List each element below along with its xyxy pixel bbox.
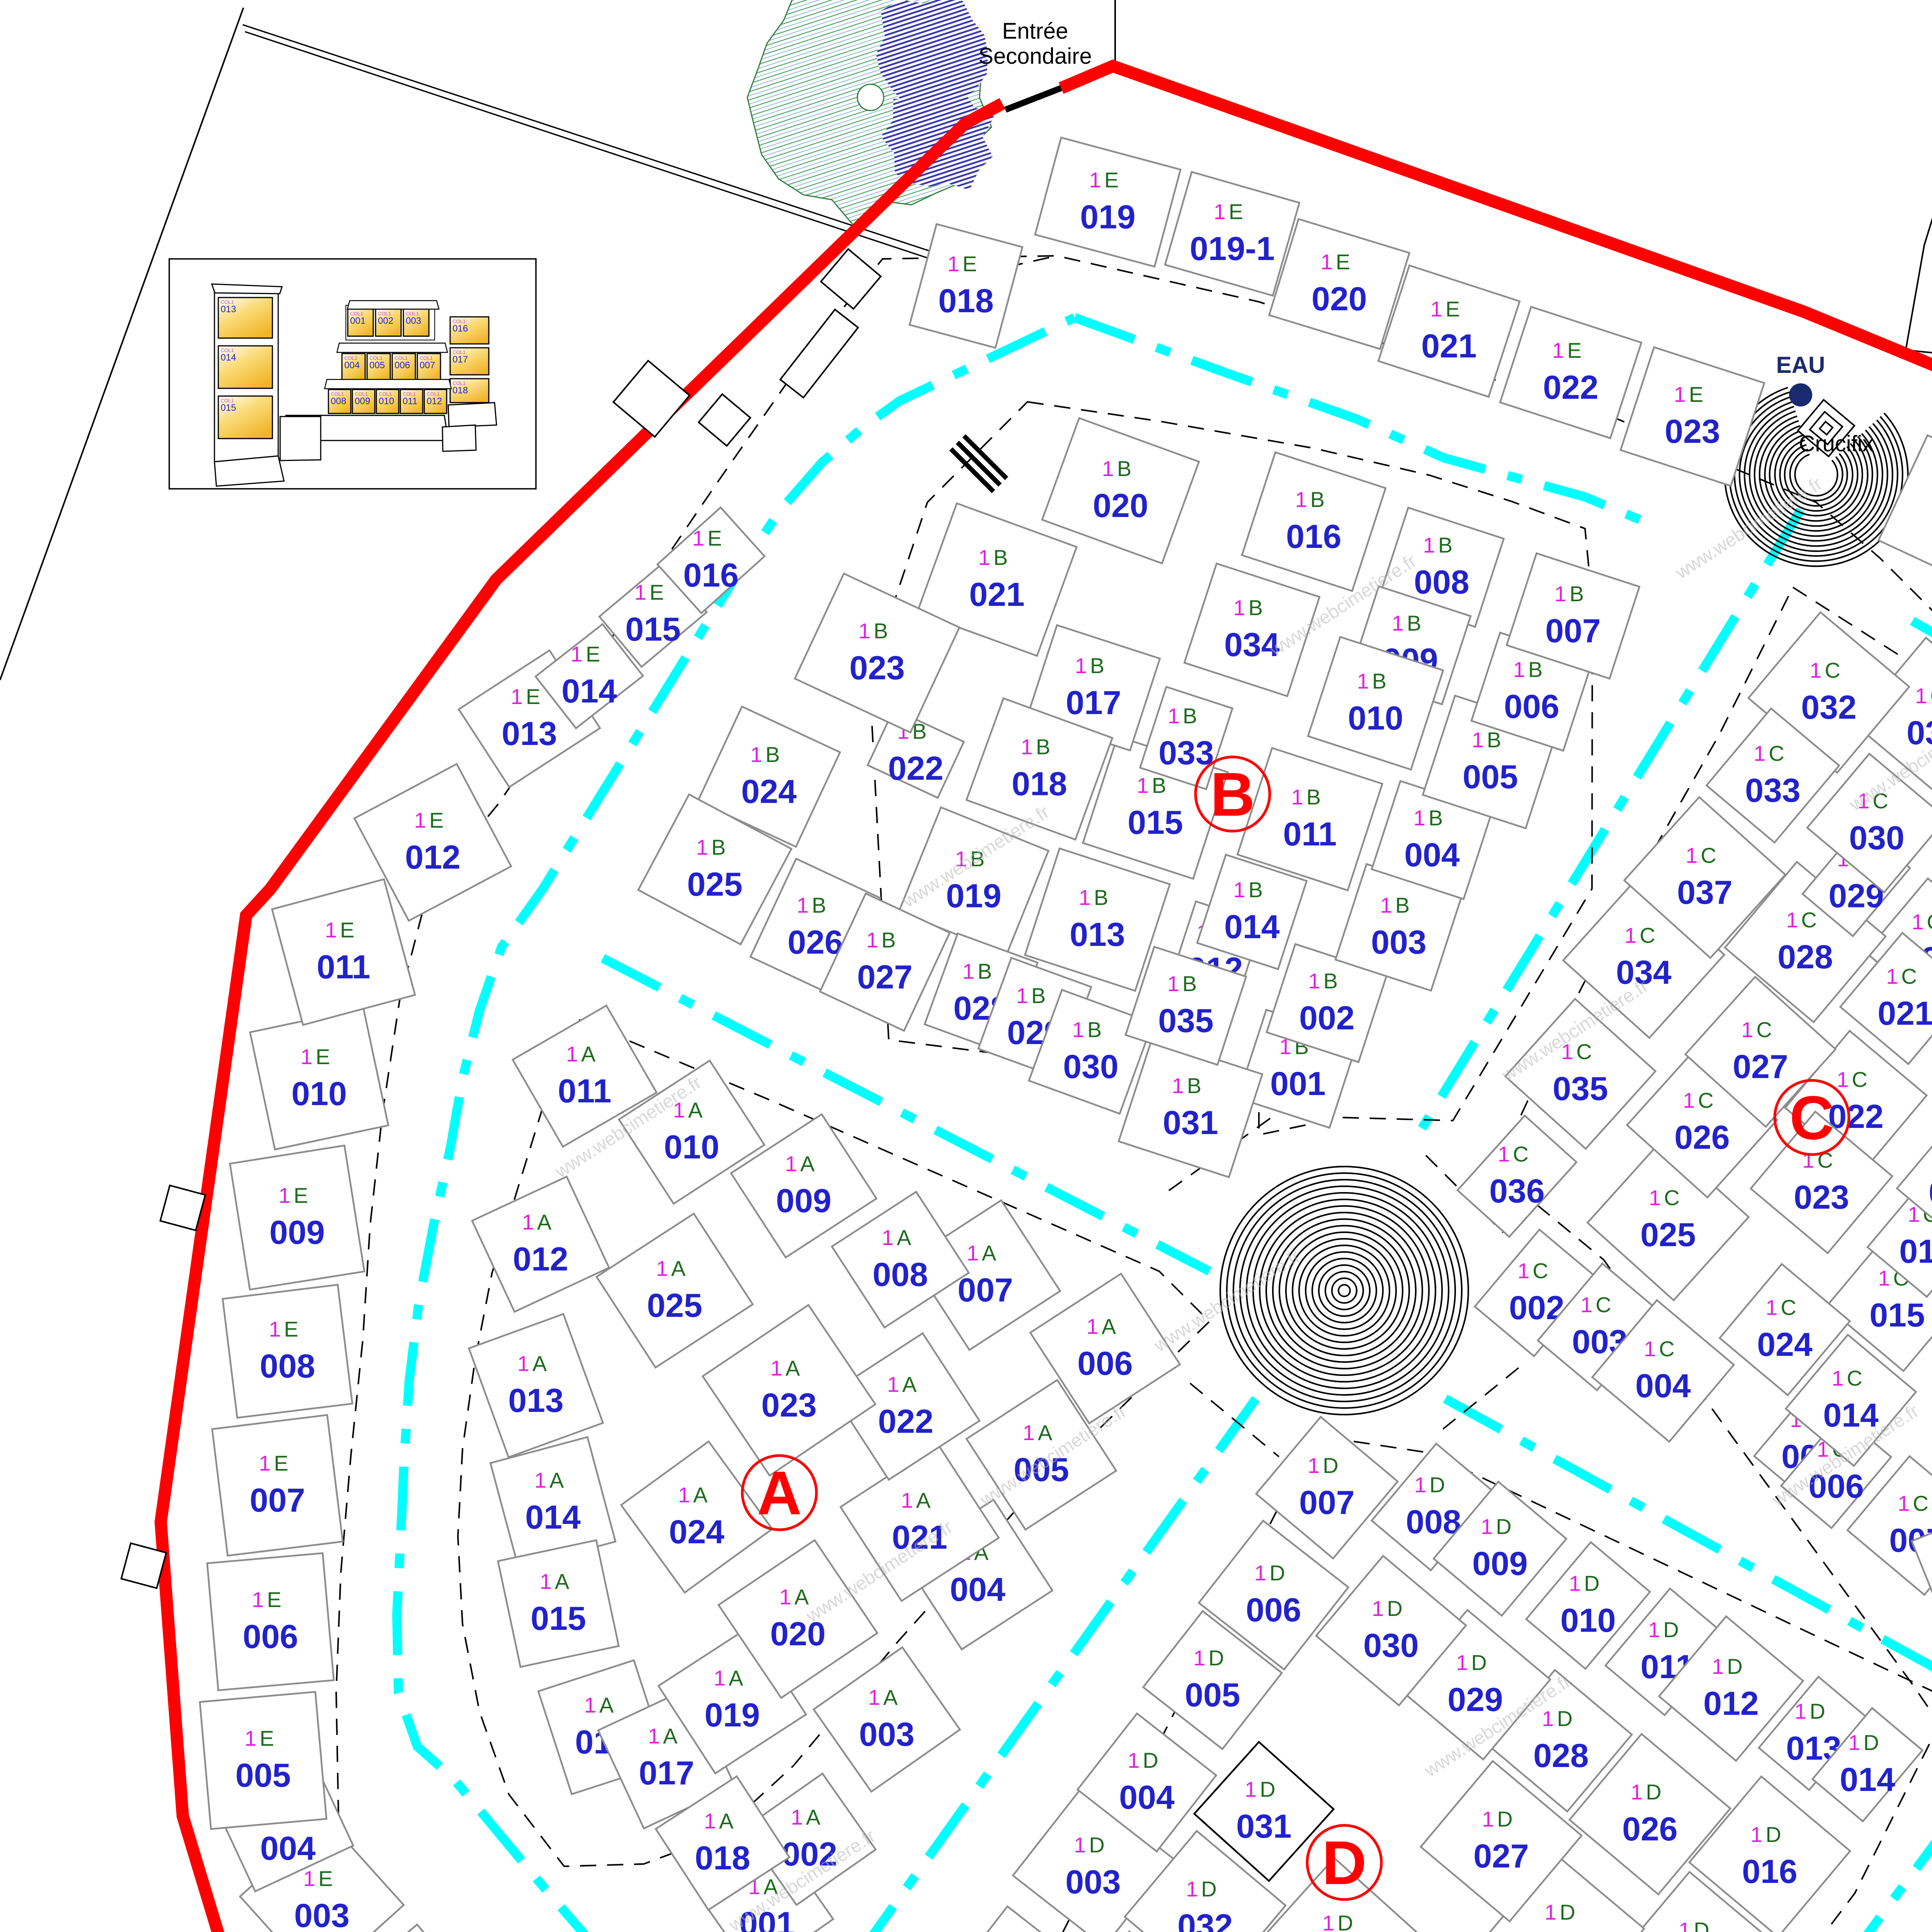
- svg-text:020: 020: [1093, 487, 1148, 524]
- svg-text:1D: 1D: [1569, 1571, 1600, 1595]
- svg-text:1D: 1D: [1456, 1650, 1487, 1675]
- svg-text:030: 030: [1063, 1048, 1119, 1085]
- svg-text:1B: 1B: [1423, 533, 1453, 557]
- svg-text:1B: 1B: [1016, 983, 1046, 1008]
- svg-text:1C: 1C: [1644, 1337, 1675, 1361]
- svg-text:1D: 1D: [1372, 1596, 1403, 1621]
- svg-text:1B: 1B: [1295, 487, 1325, 512]
- svg-text:1B: 1B: [1291, 785, 1321, 809]
- svg-text:011: 011: [317, 949, 371, 986]
- svg-text:1B: 1B: [1233, 878, 1263, 902]
- svg-text:023: 023: [1794, 1179, 1849, 1216]
- svg-text:016: 016: [452, 323, 468, 334]
- svg-text:030: 030: [1363, 1627, 1419, 1664]
- svg-text:006: 006: [395, 360, 410, 371]
- svg-text:004: 004: [1404, 837, 1460, 874]
- svg-text:1C: 1C: [1580, 1293, 1611, 1317]
- svg-text:019: 019: [946, 878, 1002, 915]
- svg-text:003: 003: [1065, 1864, 1121, 1901]
- svg-text:002: 002: [1299, 1000, 1355, 1037]
- svg-text:025: 025: [647, 1287, 702, 1324]
- svg-text:005: 005: [1185, 1677, 1240, 1714]
- svg-text:027: 027: [857, 959, 913, 996]
- svg-text:010: 010: [291, 1075, 347, 1112]
- svg-text:1A: 1A: [1023, 1420, 1053, 1445]
- svg-text:1B: 1B: [1021, 735, 1051, 759]
- svg-text:1C: 1C: [1649, 1185, 1680, 1210]
- svg-text:1D: 1D: [1794, 1699, 1825, 1723]
- svg-text:006: 006: [1246, 1592, 1301, 1629]
- svg-text:017: 017: [1066, 684, 1121, 721]
- svg-text:1B: 1B: [1172, 1073, 1202, 1098]
- svg-text:027: 027: [1473, 1838, 1529, 1875]
- svg-text:C: C: [1789, 1083, 1834, 1152]
- svg-text:1E: 1E: [511, 684, 541, 709]
- svg-text:1E: 1E: [259, 1451, 289, 1475]
- svg-text:025: 025: [1640, 1216, 1696, 1253]
- svg-text:B: B: [1210, 760, 1255, 829]
- svg-text:1E: 1E: [269, 1317, 299, 1341]
- svg-text:1D: 1D: [1414, 1473, 1445, 1497]
- svg-text:007: 007: [1545, 612, 1601, 650]
- svg-text:018: 018: [938, 282, 994, 320]
- svg-text:010: 010: [1348, 700, 1403, 737]
- svg-text:1C: 1C: [1741, 1017, 1772, 1042]
- svg-text:003: 003: [406, 316, 421, 326]
- svg-text:1E: 1E: [252, 1587, 282, 1612]
- svg-text:012: 012: [427, 396, 442, 406]
- svg-text:1A: 1A: [868, 1685, 898, 1709]
- svg-text:010: 010: [379, 396, 394, 406]
- svg-text:026: 026: [1622, 1811, 1678, 1848]
- svg-text:1E: 1E: [571, 642, 600, 666]
- svg-text:013: 013: [502, 715, 557, 752]
- svg-text:004: 004: [260, 1830, 316, 1867]
- svg-text:Secondaire: Secondaire: [978, 44, 1092, 69]
- svg-text:1E: 1E: [1674, 382, 1704, 406]
- svg-text:1A: 1A: [566, 1042, 596, 1066]
- svg-text:1C: 1C: [1683, 1088, 1714, 1112]
- svg-text:1C: 1C: [1810, 658, 1840, 682]
- svg-text:1D: 1D: [1648, 1617, 1679, 1642]
- svg-text:022: 022: [878, 1403, 934, 1440]
- svg-text:1C: 1C: [1517, 1259, 1548, 1283]
- svg-text:1B: 1B: [1513, 657, 1543, 682]
- svg-text:016: 016: [1742, 1853, 1798, 1890]
- svg-text:1A: 1A: [785, 1151, 815, 1176]
- svg-text:019: 019: [1080, 199, 1136, 236]
- svg-text:014: 014: [1840, 1761, 1895, 1798]
- svg-text:032: 032: [1801, 689, 1857, 726]
- svg-text:024: 024: [669, 1514, 724, 1551]
- svg-text:006: 006: [1077, 1345, 1133, 1382]
- svg-text:011: 011: [403, 396, 417, 406]
- svg-text:001: 001: [350, 316, 366, 326]
- svg-text:1B: 1B: [1079, 885, 1109, 910]
- svg-text:1D: 1D: [1128, 1748, 1158, 1772]
- svg-text:035: 035: [1553, 1070, 1608, 1107]
- svg-text:1D: 1D: [1186, 1877, 1217, 1901]
- svg-text:1B: 1B: [859, 619, 888, 643]
- svg-text:009: 009: [355, 396, 370, 406]
- svg-text:1A: 1A: [584, 1693, 614, 1717]
- svg-text:028: 028: [1533, 1737, 1589, 1774]
- svg-text:023: 023: [761, 1387, 817, 1424]
- svg-text:1C: 1C: [1837, 1067, 1867, 1092]
- svg-text:006: 006: [1504, 688, 1560, 725]
- svg-text:015: 015: [221, 403, 236, 413]
- svg-text:009: 009: [1472, 1545, 1528, 1582]
- svg-text:1E: 1E: [414, 808, 444, 832]
- svg-text:004: 004: [344, 360, 360, 371]
- svg-text:D: D: [1322, 1828, 1367, 1897]
- svg-text:EAU: EAU: [1776, 352, 1825, 378]
- svg-text:009: 009: [269, 1214, 325, 1251]
- svg-text:019: 019: [704, 1697, 760, 1734]
- svg-text:021: 021: [969, 576, 1025, 613]
- svg-text:023: 023: [1665, 413, 1720, 450]
- svg-text:1D: 1D: [1542, 1706, 1573, 1731]
- svg-text:028: 028: [1777, 939, 1833, 976]
- svg-text:1B: 1B: [978, 545, 1008, 570]
- svg-text:1E: 1E: [279, 1183, 308, 1207]
- svg-text:004: 004: [1119, 1779, 1175, 1816]
- svg-text:1C: 1C: [1786, 908, 1817, 932]
- svg-text:007: 007: [250, 1482, 305, 1519]
- svg-text:016: 016: [1899, 1233, 1932, 1270]
- svg-text:1A: 1A: [791, 1805, 821, 1829]
- svg-text:003: 003: [1371, 924, 1427, 961]
- svg-text:013: 013: [1070, 916, 1125, 953]
- svg-text:017: 017: [1929, 1174, 1932, 1211]
- svg-text:Entrée: Entrée: [1002, 19, 1068, 44]
- svg-text:031: 031: [1236, 1808, 1292, 1845]
- svg-text:037: 037: [1677, 874, 1733, 911]
- svg-text:1B: 1B: [1072, 1017, 1102, 1042]
- svg-text:008: 008: [1414, 564, 1469, 601]
- svg-text:015: 015: [531, 1600, 586, 1637]
- svg-text:1B: 1B: [1102, 456, 1132, 481]
- svg-text:003: 003: [294, 1897, 350, 1932]
- svg-text:023: 023: [849, 650, 905, 687]
- svg-text:1E: 1E: [634, 580, 664, 604]
- svg-text:1B: 1B: [866, 928, 896, 952]
- svg-text:027: 027: [1733, 1048, 1788, 1085]
- svg-text:1B: 1B: [1472, 728, 1502, 752]
- svg-text:018: 018: [452, 385, 468, 396]
- svg-text:1B: 1B: [1308, 969, 1338, 993]
- svg-text:1A: 1A: [704, 1809, 734, 1833]
- svg-text:1D: 1D: [1631, 1780, 1662, 1804]
- svg-text:1B: 1B: [1413, 806, 1443, 830]
- svg-text:1D: 1D: [1074, 1833, 1105, 1857]
- svg-text:005: 005: [235, 1757, 291, 1794]
- svg-text:1D: 1D: [1750, 1822, 1781, 1847]
- svg-text:012: 012: [1703, 1685, 1759, 1722]
- svg-text:1A: 1A: [648, 1724, 678, 1748]
- svg-text:1D: 1D: [1254, 1561, 1285, 1585]
- svg-text:1B: 1B: [1168, 704, 1197, 728]
- svg-text:008: 008: [260, 1348, 315, 1385]
- svg-text:033: 033: [1745, 772, 1801, 809]
- svg-text:1E: 1E: [1321, 250, 1350, 274]
- svg-text:1A: 1A: [901, 1488, 931, 1512]
- svg-text:1E: 1E: [325, 918, 355, 942]
- svg-text:015: 015: [625, 611, 681, 648]
- svg-text:008: 008: [331, 396, 346, 406]
- svg-text:012: 012: [405, 839, 461, 876]
- svg-text:031: 031: [1163, 1104, 1218, 1141]
- svg-text:014: 014: [1224, 908, 1280, 946]
- svg-text:016: 016: [683, 557, 739, 594]
- svg-text:015: 015: [1128, 804, 1183, 841]
- svg-text:021: 021: [1421, 328, 1477, 365]
- svg-text:1B: 1B: [750, 742, 780, 767]
- svg-text:1B: 1B: [696, 835, 726, 859]
- svg-text:011: 011: [558, 1073, 612, 1110]
- svg-text:1A: 1A: [517, 1351, 547, 1376]
- svg-text:1A: 1A: [522, 1210, 552, 1234]
- svg-text:1A: 1A: [678, 1483, 708, 1507]
- svg-text:030: 030: [1849, 820, 1905, 857]
- svg-text:026: 026: [787, 924, 843, 961]
- svg-text:1C: 1C: [1685, 843, 1716, 867]
- svg-text:1B: 1B: [797, 893, 827, 917]
- svg-text:005: 005: [1463, 759, 1518, 796]
- svg-text:036: 036: [1489, 1173, 1545, 1210]
- svg-text:Crucifix: Crucifix: [1799, 431, 1873, 456]
- svg-text:1D: 1D: [1712, 1654, 1743, 1679]
- svg-text:1E: 1E: [1430, 297, 1460, 321]
- svg-text:1A: 1A: [714, 1666, 743, 1690]
- svg-text:024: 024: [1757, 1326, 1813, 1363]
- svg-text:1D: 1D: [1308, 1453, 1338, 1478]
- svg-text:1A: 1A: [540, 1569, 570, 1594]
- svg-text:022: 022: [1543, 369, 1599, 406]
- svg-text:1D: 1D: [1481, 1514, 1512, 1539]
- svg-text:1E: 1E: [1214, 199, 1243, 224]
- svg-text:005: 005: [369, 360, 385, 371]
- svg-text:010: 010: [664, 1129, 719, 1166]
- svg-text:1B: 1B: [1392, 611, 1422, 635]
- svg-text:014: 014: [525, 1499, 581, 1536]
- svg-text:1B: 1B: [963, 959, 992, 983]
- svg-text:1C: 1C: [1832, 1366, 1862, 1390]
- svg-text:1B: 1B: [1357, 669, 1387, 693]
- svg-text:1D: 1D: [1245, 1777, 1276, 1801]
- svg-text:1E: 1E: [947, 252, 977, 276]
- svg-text:013: 013: [221, 304, 236, 315]
- svg-text:017: 017: [639, 1755, 694, 1792]
- svg-text:1B: 1B: [1167, 971, 1197, 996]
- svg-text:1A: 1A: [887, 1372, 917, 1396]
- svg-text:1A: 1A: [534, 1468, 564, 1492]
- svg-text:1A: 1A: [779, 1585, 809, 1609]
- svg-text:1D: 1D: [1848, 1730, 1879, 1755]
- svg-text:007: 007: [1299, 1484, 1355, 1521]
- svg-text:009: 009: [776, 1182, 832, 1219]
- svg-text:033: 033: [1158, 735, 1214, 772]
- svg-text:006: 006: [243, 1618, 298, 1655]
- svg-text:007: 007: [957, 1272, 1013, 1309]
- svg-text:1B: 1B: [1075, 653, 1105, 678]
- svg-text:016: 016: [1286, 518, 1342, 555]
- svg-text:018: 018: [1012, 765, 1067, 803]
- svg-text:1B: 1B: [1554, 582, 1584, 606]
- svg-text:011: 011: [1283, 816, 1337, 853]
- svg-text:1C: 1C: [1898, 1491, 1929, 1515]
- svg-text:1A: 1A: [1087, 1314, 1116, 1338]
- svg-text:1C: 1C: [1624, 923, 1655, 947]
- svg-text:1C: 1C: [1753, 741, 1784, 765]
- svg-text:1D: 1D: [1322, 1911, 1353, 1932]
- svg-text:1B: 1B: [1380, 893, 1410, 917]
- svg-text:002: 002: [378, 316, 393, 326]
- svg-text:1E: 1E: [303, 1866, 333, 1891]
- svg-text:035: 035: [1158, 1002, 1214, 1039]
- svg-text:014: 014: [561, 673, 617, 710]
- svg-text:1A: 1A: [882, 1225, 912, 1250]
- svg-text:1C: 1C: [1765, 1295, 1796, 1320]
- svg-text:013: 013: [508, 1382, 564, 1419]
- svg-text:017: 017: [452, 354, 468, 365]
- svg-text:025: 025: [687, 866, 743, 903]
- svg-text:032: 032: [1177, 1908, 1233, 1932]
- svg-text:015: 015: [1869, 1297, 1925, 1334]
- svg-text:020: 020: [1311, 281, 1367, 318]
- svg-text:024: 024: [741, 773, 797, 810]
- svg-text:1D: 1D: [1193, 1646, 1224, 1670]
- svg-text:1D: 1D: [1482, 1807, 1513, 1831]
- svg-text:026: 026: [1674, 1119, 1730, 1156]
- svg-text:019-1: 019-1: [1190, 230, 1275, 267]
- svg-text:007: 007: [420, 360, 435, 371]
- svg-text:021: 021: [1878, 995, 1932, 1032]
- svg-text:1D: 1D: [1679, 1918, 1709, 1932]
- svg-text:008: 008: [872, 1256, 928, 1293]
- svg-text:004: 004: [1635, 1367, 1691, 1405]
- svg-text:1C: 1C: [1886, 964, 1917, 988]
- svg-text:1B: 1B: [1233, 595, 1263, 620]
- svg-text:1A: 1A: [656, 1256, 686, 1281]
- svg-text:1A: 1A: [967, 1241, 997, 1265]
- svg-text:014: 014: [221, 352, 236, 363]
- svg-text:018: 018: [695, 1840, 750, 1877]
- svg-text:029: 029: [1447, 1681, 1503, 1718]
- svg-text:022: 022: [888, 750, 944, 787]
- svg-text:1E: 1E: [1089, 168, 1119, 192]
- svg-text:1C: 1C: [1912, 910, 1932, 934]
- svg-text:1D: 1D: [1544, 1900, 1575, 1924]
- svg-text:1E: 1E: [245, 1726, 274, 1750]
- svg-text:1B: 1B: [1137, 773, 1167, 798]
- svg-text:003: 003: [859, 1716, 915, 1753]
- svg-text:A: A: [757, 1458, 802, 1527]
- svg-text:1A: 1A: [770, 1356, 800, 1380]
- svg-text:001: 001: [1270, 1065, 1326, 1102]
- svg-text:004: 004: [950, 1571, 1005, 1608]
- svg-text:012: 012: [513, 1241, 568, 1278]
- svg-text:1C: 1C: [1498, 1142, 1529, 1166]
- svg-text:1E: 1E: [692, 526, 722, 550]
- svg-text:1E: 1E: [301, 1044, 330, 1069]
- svg-text:1E: 1E: [1552, 338, 1582, 362]
- svg-text:010: 010: [1560, 1602, 1616, 1639]
